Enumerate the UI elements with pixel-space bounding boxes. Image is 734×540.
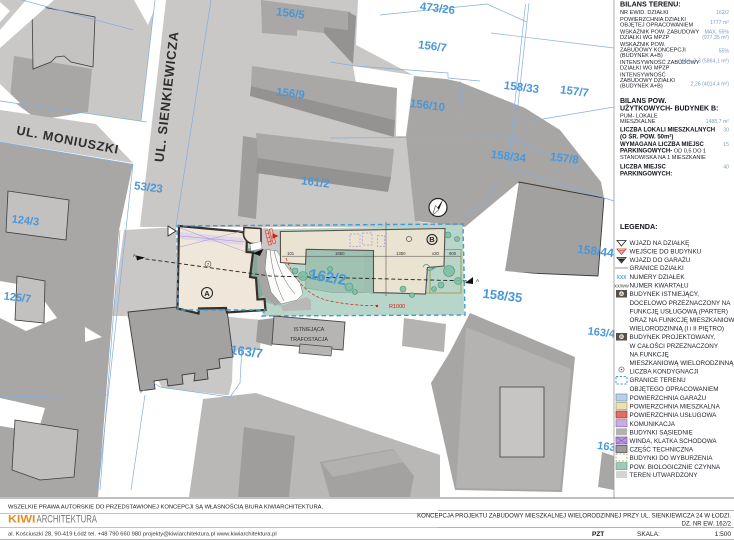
- svg-text:NUMER KWARTAŁU: NUMER KWARTAŁU: [630, 283, 689, 290]
- svg-text:1488,7 m²: 1488,7 m²: [706, 119, 730, 125]
- svg-text:900: 900: [449, 251, 457, 256]
- svg-text:30: 30: [723, 128, 729, 134]
- svg-text:POWIERZCHNIA USŁUGOWA: POWIERZCHNIA USŁUGOWA: [630, 412, 718, 419]
- svg-text:1350: 1350: [396, 251, 406, 256]
- svg-text:DOCELOWO PRZEZNACZONY NA: DOCELOWO PRZEZNACZONY NA: [630, 300, 732, 307]
- svg-text:W CAŁOŚCI PRZEZNACZONY: W CAŁOŚCI PRZEZNACZONY: [630, 341, 719, 350]
- svg-text:WEJŚCIE DO BUDYNKU: WEJŚCIE DO BUDYNKU: [630, 247, 702, 256]
- svg-text:DZ. NR EW. 162/2: DZ. NR EW. 162/2: [682, 522, 732, 528]
- svg-text:BILANS TERENU:: BILANS TERENU:: [620, 0, 681, 9]
- svg-text:15: 15: [723, 142, 729, 148]
- svg-text:101: 101: [287, 251, 295, 256]
- svg-text:DZIAŁKI WG MPZP: DZIAŁKI WG MPZP: [620, 35, 670, 41]
- svg-text:40: 40: [723, 165, 729, 171]
- svg-text:XX/WW: XX/WW: [614, 284, 629, 289]
- svg-text:1:500: 1:500: [715, 531, 732, 538]
- svg-text:OBJĘTEJ OPRACOWANIEM: OBJĘTEJ OPRACOWANIEM: [620, 23, 693, 29]
- svg-text:TRAFOSTACJA: TRAFOSTACJA: [290, 337, 328, 343]
- svg-text:ARCHITEKTURA: ARCHITEKTURA: [37, 514, 98, 526]
- svg-text:WSZELKIE PRAWA AUTORSKIE DO PR: WSZELKIE PRAWA AUTORSKIE DO PRZEDSTAWION…: [8, 503, 324, 511]
- svg-text:UŻYTKOWYCH- BUDYNEK B:: UŻYTKOWYCH- BUDYNEK B:: [620, 105, 718, 113]
- svg-text:A: A: [133, 253, 136, 258]
- svg-text:x30: x30: [432, 251, 440, 256]
- svg-text:WJAZD DO GARAŻU: WJAZD DO GARAŻU: [630, 255, 691, 264]
- svg-text:NA FUNKCJĘ: NA FUNKCJĘ: [630, 351, 669, 358]
- svg-text:R1000: R1000: [389, 304, 405, 310]
- svg-text:XXX: XXX: [616, 275, 627, 281]
- svg-text:1777 m²: 1777 m²: [710, 20, 729, 26]
- svg-text:NUMERY DZIAŁEK: NUMERY DZIAŁEK: [630, 274, 686, 281]
- svg-text:(BUDYNEK A+B): (BUDYNEK A+B): [620, 84, 663, 90]
- svg-text:BUDYNKI DO WYBURZENIA: BUDYNKI DO WYBURZENIA: [630, 455, 714, 462]
- svg-text:BUDYNKI SĄSIEDNIE: BUDYNKI SĄSIEDNIE: [630, 430, 693, 437]
- svg-text:BUDYNEK ISTNIEJĄCY,: BUDYNEK ISTNIEJĄCY,: [630, 291, 700, 298]
- svg-text:2,26 (4014,4 m²): 2,26 (4014,4 m²): [691, 82, 730, 88]
- svg-text:TEREN UTWARDZONY: TEREN UTWARDZONY: [630, 472, 699, 479]
- svg-text:KONCEPCJA PROJEKTU ZABUDOWY MI: KONCEPCJA PROJEKTU ZABUDOWY MIESZKALNEJ …: [417, 514, 731, 520]
- svg-text:LICZBA MIEJSC: LICZBA MIEJSC: [620, 165, 666, 171]
- svg-text:LICZBA KONDYGNACJI: LICZBA KONDYGNACJI: [630, 369, 699, 376]
- svg-text:55%: 55%: [719, 49, 730, 55]
- svg-text:LEGENDA:: LEGENDA:: [620, 222, 658, 231]
- svg-text:al. Kościuszki 28, 90-419 Łódź: al. Kościuszki 28, 90-419 Łódź tel. +48 …: [8, 532, 277, 538]
- svg-text:WIELORODZINNĄ (I i II PIĘTRO): WIELORODZINNĄ (I i II PIĘTRO): [630, 326, 724, 333]
- svg-text:KOMUNIKACJA: KOMUNIKACJA: [630, 421, 676, 428]
- svg-text:MIESZKANIOWĄ WIELORODZINNĄ: MIESZKANIOWĄ WIELORODZINNĄ: [630, 360, 734, 367]
- svg-text:LICZBA LOKALI MIESZKALNYCH: LICZBA LOKALI MIESZKALNYCH: [620, 128, 715, 134]
- svg-text:A: A: [476, 278, 479, 283]
- svg-text:PARKINGOWYCH:: PARKINGOWYCH:: [620, 172, 672, 178]
- svg-text:(977,35 m²): (977,35 m²): [702, 35, 729, 41]
- svg-text:WINDA, KLATKA SCHODOWA: WINDA, KLATKA SCHODOWA: [630, 438, 718, 445]
- svg-text:POWIERZCHNIA GARAŻU: POWIERZCHNIA GARAŻU: [630, 393, 707, 402]
- svg-text:BUDYNEK PROJEKTOWANY,: BUDYNEK PROJEKTOWANY,: [630, 334, 716, 341]
- svg-text:WJAZD NA DZIAŁKĘ: WJAZD NA DZIAŁKĘ: [630, 240, 690, 247]
- svg-text:STANOWISKA NA 1 MIESZKANIE: STANOWISKA NA 1 MIESZKANIE: [620, 155, 706, 161]
- svg-text:162/2: 162/2: [716, 10, 729, 16]
- svg-text:NR EWID. DZIAŁKI: NR EWID. DZIAŁKI: [620, 10, 669, 16]
- svg-text:KIWI: KIWI: [8, 514, 36, 526]
- svg-text:WYMAGANA LICZBA MIEJSC: WYMAGANA LICZBA MIEJSC: [620, 142, 705, 148]
- svg-text:ORAZ NA FUNKCJĘ MIESZKANIOWĄ: ORAZ NA FUNKCJĘ MIESZKANIOWĄ: [630, 317, 734, 324]
- svg-text:CZĘŚĆ TECHNICZNA: CZĘŚĆ TECHNICZNA: [630, 445, 694, 454]
- svg-text:ISTNIEJĄCA: ISTNIEJĄCA: [294, 327, 325, 333]
- svg-text:GRANICE DZIAŁKI: GRANICE DZIAŁKI: [630, 265, 684, 272]
- svg-text:(O ŚR. POW. 50m²): (O ŚR. POW. 50m²): [620, 134, 673, 141]
- svg-text:B: B: [429, 235, 435, 244]
- svg-text:(BUDYNEK A+B): (BUDYNEK A+B): [620, 53, 663, 59]
- svg-text:A: A: [204, 289, 210, 298]
- svg-text:OBJĘTEGO OPRACOWANIEM: OBJĘTEGO OPRACOWANIEM: [630, 386, 719, 393]
- svg-text:163: 163: [597, 440, 617, 454]
- svg-text:POWIERZCHNIA MIESZKALNA: POWIERZCHNIA MIESZKALNA: [630, 404, 721, 411]
- svg-text:PZT: PZT: [592, 531, 604, 538]
- svg-text:SKALA:: SKALA:: [637, 531, 660, 538]
- svg-text:DZIAŁKI WG MPZP: DZIAŁKI WG MPZP: [620, 66, 670, 72]
- svg-text:MIESZKALNE: MIESZKALNE: [620, 119, 656, 125]
- svg-text:POW. BIOLOGICZNIE CZYNNA: POW. BIOLOGICZNIE CZYNNA: [630, 464, 721, 471]
- svg-text:MAX. 3,3 (5864,1 m²): MAX. 3,3 (5864,1 m²): [679, 59, 729, 65]
- svg-text:1850: 1850: [335, 251, 345, 256]
- svg-text:GRANICE TERENU: GRANICE TERENU: [630, 377, 687, 384]
- svg-text:BILANS POW.: BILANS POW.: [620, 98, 666, 105]
- svg-text:PARKINGOWYCH- OD 0,5 DO 1: PARKINGOWYCH- OD 0,5 DO 1: [620, 149, 706, 155]
- svg-text:FUNKCJĘ USŁUGOWĄ (PARTER): FUNKCJĘ USŁUGOWĄ (PARTER): [630, 308, 728, 315]
